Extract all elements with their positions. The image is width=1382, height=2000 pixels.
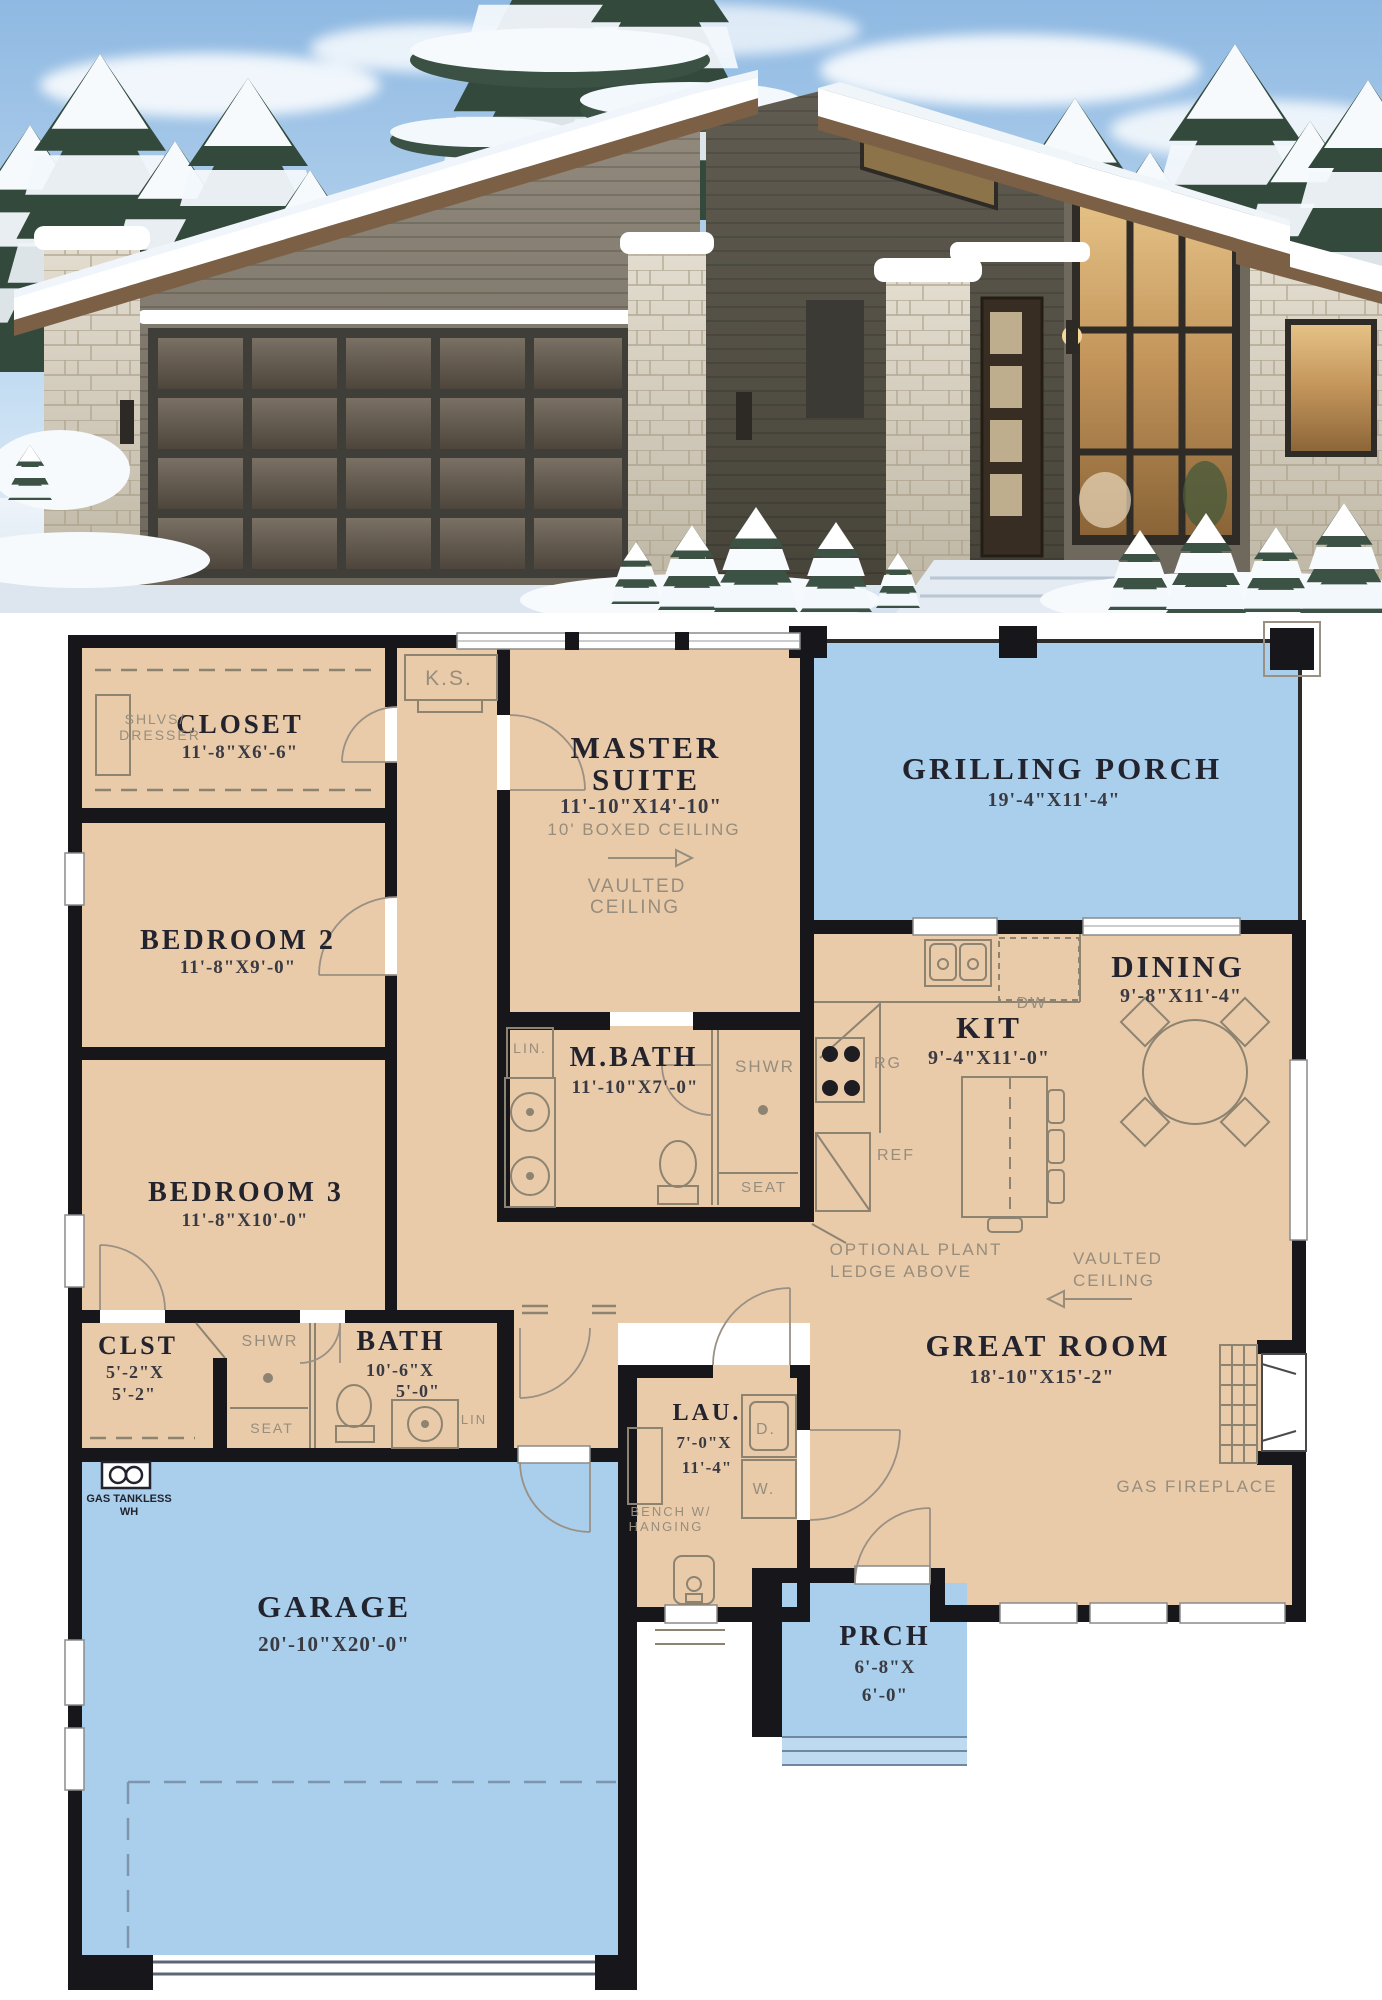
label-bedroom3-dims: 11'-8"X10'-0" — [182, 1210, 309, 1231]
utility-panel — [806, 300, 864, 418]
hall2-floor — [497, 1222, 814, 1323]
label-seat2: SEAT — [250, 1420, 294, 1436]
label-bath-lin: LIN — [461, 1412, 487, 1427]
label-garage: GARAGE — [257, 1589, 411, 1624]
label-bedroom2-dims: 11'-8"X9'-0" — [180, 957, 296, 978]
label-mbath-shwr: SHWR — [735, 1057, 795, 1076]
label-grilling-porch: GRILLING PORCH — [902, 751, 1222, 786]
label-prch: PRCH — [839, 1621, 930, 1652]
pillar-snowcap-right — [620, 232, 714, 254]
hall-floor — [397, 648, 497, 1323]
label-clst: CLST — [98, 1331, 178, 1360]
label-dining: DINING — [1111, 949, 1244, 984]
stone-wing-window — [1288, 322, 1374, 454]
garage-sconce-2 — [736, 392, 752, 440]
label-wh-1: GAS TANKLESS — [86, 1493, 171, 1505]
label-gr-vault-2: CEILING — [1073, 1271, 1155, 1290]
garage-door-snow-ledge — [138, 310, 640, 324]
label-ref: REF — [877, 1147, 915, 1164]
label-bath: BATH — [356, 1326, 445, 1357]
label-dw: DW — [1017, 995, 1048, 1012]
garage-door — [148, 328, 632, 578]
porch-column — [999, 626, 1037, 658]
label-master-ceiling: 10' BOXED CEILING — [547, 820, 740, 839]
label-mbath-seat: SEAT — [741, 1179, 787, 1196]
house-plan-sheet: CLOSET 11'-8"X6'-6" SHLVS/ DRESSER K.S. … — [0, 0, 1382, 2000]
label-bedroom2: BEDROOM 2 — [140, 925, 336, 956]
label-lau-dims-1: 7'-0"X — [676, 1433, 731, 1452]
label-kit: KIT — [956, 1010, 1022, 1045]
label-shlvs-2: DRESSER — [119, 727, 201, 743]
label-dryer: D. — [756, 1421, 776, 1438]
exterior-photo — [0, 0, 1382, 628]
label-mbath: M.BATH — [570, 1042, 699, 1073]
corridor-floor — [514, 1323, 618, 1462]
label-bench-1: BENCH W/ — [631, 1504, 712, 1519]
entry-roof-snow — [950, 242, 1090, 262]
label-mbath-dims: 11'-10"X7'-0" — [572, 1077, 699, 1098]
label-bath-dims-1: 10'-6"X — [366, 1360, 434, 1380]
label-bench-2: HANGING — [629, 1519, 704, 1534]
label-washer: W. — [753, 1481, 776, 1498]
label-gr-vault-1: VAULTED — [1073, 1249, 1163, 1268]
label-grilling-porch-dims: 19'-4"X11'-4" — [988, 789, 1121, 811]
label-prch-dims-1: 6'-8"X — [855, 1657, 916, 1678]
label-mbath-lin: LIN. — [513, 1040, 547, 1056]
label-prch-dims-2: 6'-0" — [862, 1685, 908, 1706]
label-kit-dims: 9'-4"X11'-0" — [928, 1047, 1050, 1069]
label-shlvs-1: SHLVS/ — [125, 711, 186, 727]
label-wh-2: WH — [120, 1506, 138, 1518]
label-rg: RG — [874, 1055, 902, 1072]
floor-plan: CLOSET 11'-8"X6'-6" SHLVS/ DRESSER K.S. … — [65, 622, 1320, 1990]
label-master-1: MASTER — [571, 730, 722, 765]
fireplace-box — [1262, 1354, 1306, 1451]
label-plant-ledge-1: OPTIONAL PLANT — [830, 1240, 1003, 1259]
label-closet-dims: 11'-8"X6'-6" — [182, 742, 298, 763]
label-garage-dims: 20'-10"X20'-0" — [258, 1632, 410, 1656]
label-gas-fireplace: GAS FIREPLACE — [1116, 1477, 1277, 1496]
label-great-room: GREAT ROOM — [925, 1328, 1170, 1363]
label-great-room-dims: 18'-10"X15'-2" — [969, 1366, 1114, 1388]
label-bedroom3: BEDROOM 3 — [148, 1177, 344, 1208]
label-lau: LAU. — [673, 1400, 742, 1426]
label-lau-dims-2: 11'-4" — [682, 1458, 732, 1477]
label-master-2: SUITE — [592, 762, 700, 797]
label-shwr2: SHWR — [242, 1333, 299, 1350]
garage-floor — [82, 1462, 618, 1955]
label-master-vault-2: CEILING — [590, 897, 680, 918]
porch-corner-column — [1270, 628, 1314, 670]
label-master-vault-1: VAULTED — [588, 876, 687, 897]
label-bath-dims-2: 5'-0" — [396, 1381, 440, 1401]
label-plant-ledge-2: LEDGE ABOVE — [830, 1262, 972, 1281]
pillar-snowcap-left — [34, 226, 150, 250]
label-dining-dims: 9'-8"X11'-4" — [1120, 985, 1242, 1007]
label-ks: K.S. — [425, 667, 473, 690]
garage-sconce — [120, 400, 134, 444]
label-clst-dims-2: 5'-2" — [112, 1384, 156, 1404]
label-clst-dims-1: 5'-2"X — [106, 1362, 164, 1382]
label-master-dims: 11'-10"X14'-10" — [560, 794, 722, 818]
